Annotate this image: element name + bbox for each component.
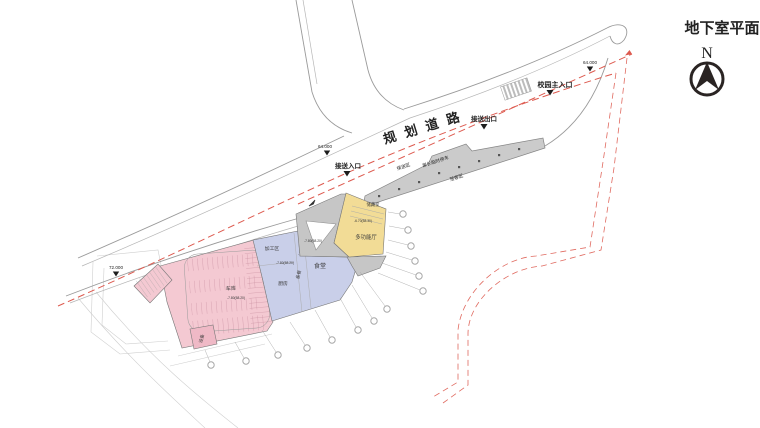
dropoff-exit-marker: 接送出口	[471, 114, 497, 130]
garage-area: 车库 -7.80(58.20) 设备	[134, 240, 273, 349]
level-annotation: -7.80(58.20)	[227, 296, 245, 300]
storage-room-label: 储藏室	[367, 201, 381, 208]
dropoff-entrance-marker: 接送入口	[335, 161, 361, 177]
north-letter: N	[701, 45, 713, 62]
canteen-label: 食堂	[314, 262, 326, 270]
multi-hall-label: 多功能厅	[355, 233, 377, 241]
title-block: 地下室平面 N	[684, 19, 759, 95]
north-arrow-icon	[691, 62, 723, 95]
level-annotation: -6.70(58.30)	[354, 219, 372, 223]
ramp-arrow	[309, 200, 315, 206]
level-annotation: -7.80(58.20)	[304, 239, 322, 243]
svg-text:接送出口: 接送出口	[471, 114, 497, 123]
drawing-title: 地下室平面	[684, 19, 759, 37]
level-marker-64-mid: 64.000	[318, 144, 332, 156]
site-plan-drawing: 接送区 家长临时停车 落客区 规划道路 车库 -7.80(58.20) 设备 加…	[0, 0, 760, 428]
svg-text:校园主入口: 校园主入口	[538, 80, 573, 89]
svg-text:72.000: 72.000	[109, 265, 123, 270]
dropoff-zone-label: 接送区	[396, 161, 412, 172]
svg-text:接送入口: 接送入口	[335, 161, 361, 170]
kitchen-label: 厨房	[278, 280, 288, 287]
svg-text:64.000: 64.000	[583, 60, 597, 65]
level-annotation: -7.80(58.20)	[276, 261, 294, 265]
plan-svg: 接送区 家长临时停车 落客区 规划道路 车库 -7.80(58.20) 设备 加…	[0, 0, 760, 428]
svg-text:64.000: 64.000	[318, 144, 332, 149]
process-area-label: 加工区	[265, 245, 280, 252]
level-marker-64-top: 64.000	[583, 60, 597, 72]
dropoff-strip: 接送区 家长临时停车 落客区	[363, 138, 545, 207]
crosswalk	[500, 78, 531, 100]
garage-label: 车库	[226, 285, 237, 293]
level-marker-72: 72.000	[109, 265, 123, 277]
